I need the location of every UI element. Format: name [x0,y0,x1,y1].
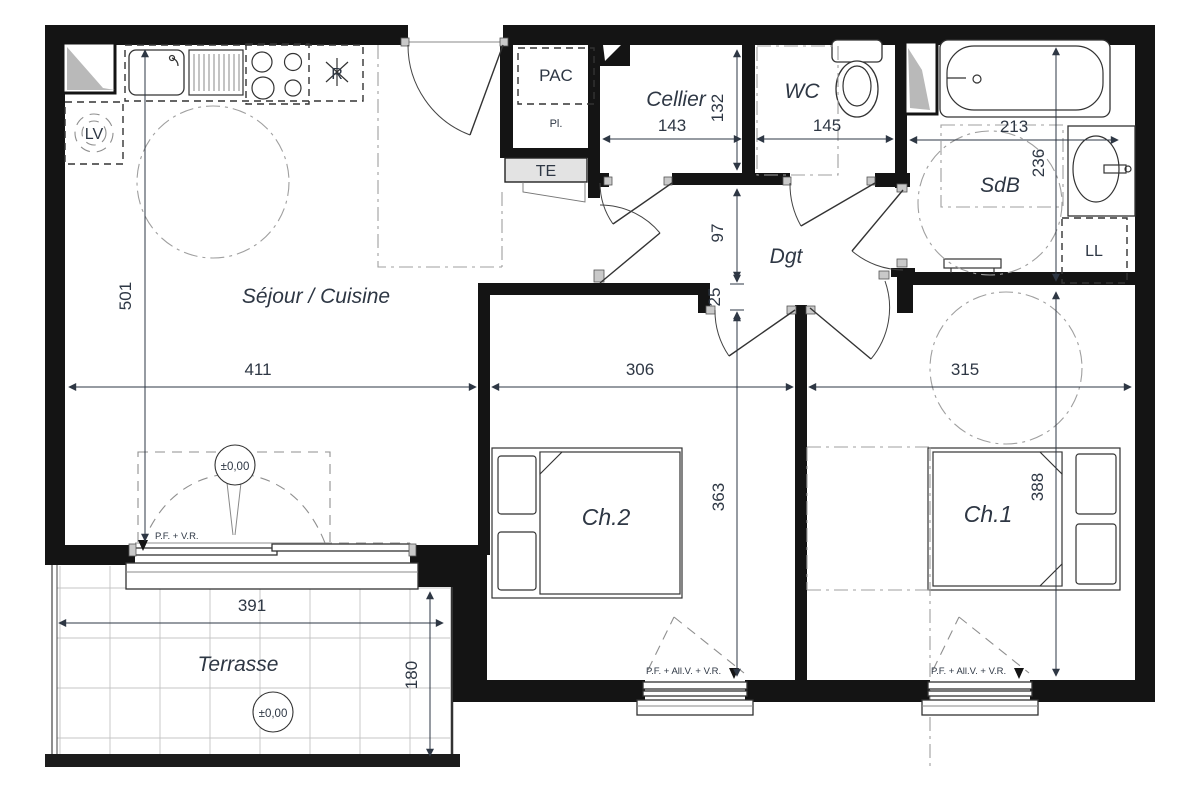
dim-180: 180 [402,661,421,689]
label-ch2: Ch.2 [582,504,631,530]
wc-door [783,177,875,226]
sejour-turning-circle [137,106,289,258]
kitchen-hob-outline [246,44,309,104]
ch1-window-swing [933,617,1029,673]
wc-fixtures [757,40,882,175]
wc-door-leaf [801,183,875,226]
floor-plan-drawing: R LV PAC Pl. TE LL [0,0,1200,800]
corridor-door [594,205,660,283]
wall-ch2-top [478,283,710,295]
label-terrasse: Terrasse [198,653,279,676]
dim-132: 132 [708,94,727,122]
label-sdb: SdB [980,174,1020,197]
toilet-bowl [836,61,878,117]
ch1-window-frame2 [928,691,1032,696]
dim-306: 306 [626,360,654,379]
sdb-door [852,184,907,270]
hob-burner-4 [285,80,301,96]
sdb-door-arc [852,251,903,270]
ch1-bed [928,448,1120,590]
terrasse-bottom-edge [45,754,460,767]
ch2-door-arc [715,310,729,356]
ch1-window-sill [922,700,1038,715]
hob-burner-2 [285,54,302,71]
bay-panel-left [135,548,277,555]
hob-burner-1 [252,52,272,72]
ch1-window-frame [928,682,1032,689]
washing-machine-label: LL [1085,243,1103,260]
ch1-bed-frame [928,448,1120,590]
sejour-level: ±0,00 [221,461,250,473]
bay-jamb-left [129,544,136,556]
entrance-jamb-right [500,38,508,46]
ch1-jamb-right [879,271,889,279]
bay-sill [126,563,418,589]
pac-label: PAC [539,66,573,85]
kitchen-drainer [189,50,243,95]
electrical-panel-flap [523,182,585,202]
ch2-window-swing [648,617,744,673]
dim-143: 143 [658,116,686,135]
wall-sejour-ch2 [478,283,490,555]
dishwasher-label: LV [85,126,104,143]
wall-left [45,25,65,565]
dim-391: 391 [238,596,266,615]
cellier-door [600,177,672,224]
guide-lines [137,45,1082,766]
entrance-door-leaf [470,45,503,135]
bay-window: P.F. + V.R. [126,452,418,589]
ch2-window-label: P.F. + All.V. + V.R. [646,666,721,677]
wc-clearance-zone [757,46,838,175]
dim-213: 213 [1000,117,1028,136]
fridge-symbol: R [326,58,348,86]
dim-25-group: 25 [705,266,744,328]
wall-pac-bottom [500,148,600,158]
ch1-jamb-left [806,306,815,314]
cellier-jamb-left [604,177,612,185]
ch1-window-arrow [1014,668,1024,679]
doors [401,38,907,359]
entry-zone [378,45,502,267]
ch2-sheet-fold [540,452,562,474]
label-wc: WC [785,80,821,103]
corridor-door-arc [600,205,660,233]
sdb-radiator [944,259,1001,273]
dim-25-ticks [730,284,744,310]
wall-sejour-bottom-left [45,545,135,565]
fridge-symbol-label: R [331,66,343,83]
floor-plan-page: R LV PAC Pl. TE LL [0,0,1200,800]
hob-burner-3 [252,77,274,99]
entrance-door-arc [408,45,470,135]
corridor-door-leaf [600,233,660,283]
dim-388: 388 [1028,473,1047,501]
wall-cellier-bottom [672,173,753,185]
terrasse-level: ±0,00 [259,708,288,720]
ch2-pillow-bottom [498,532,536,590]
dim-145: 145 [813,116,841,135]
label-dgt: Dgt [770,245,804,268]
ch1-door [806,271,890,359]
ch2-door-leaf [729,310,795,356]
wall-ch1-ch2 [795,305,807,682]
entrance-door [401,38,508,135]
ch2-pillow-top [498,456,536,514]
ch1-sheet-fold-top [1040,452,1062,474]
ch1-pillow-top [1076,454,1116,514]
placard-label: Pl. [550,118,563,130]
entrance-jamb-left [401,38,409,46]
radiator-body [944,259,1001,268]
ch2-window-frame2 [643,691,747,696]
dim-315: 315 [951,360,979,379]
ch2-door [706,306,796,356]
ch1-door-arc [871,281,890,359]
wc-door-arc [790,183,801,226]
dim-501: 501 [116,282,135,310]
bay-panel-right [272,544,410,551]
bay-window-label: P.F. + V.R. [155,531,199,542]
bay-jamb-right [409,544,416,556]
wall-cellier-wc [742,45,755,185]
ch2-window-sill [637,700,753,715]
dim-363: 363 [709,483,728,511]
kitchen-drainer-hatch [194,54,239,91]
label-cellier: Cellier [646,88,707,111]
ch1-window: P.F. + All.V. + V.R. [922,617,1038,715]
wall-bottom-middle [745,680,930,702]
label-sejour: Séjour / Cuisine [242,285,390,308]
ch2-window-frame [643,682,747,689]
wall-sejour-ch2-lower [453,550,487,682]
ch1-door-leaf [810,308,871,359]
dim-411: 411 [244,360,271,379]
kitchen-sink [129,50,184,95]
toilet-tank [832,40,882,62]
wall-pac-left [500,45,513,158]
ch1-pillow-bottom [1076,524,1116,584]
ch1-window-label: P.F. + All.V. + V.R. [931,666,1006,677]
wall-ch1-bottom [1030,680,1155,702]
dishwasher: LV [65,102,123,164]
sdb-jamb-bottom [897,259,907,267]
ch1-sheet-fold-bottom [1040,564,1062,586]
sdb-fixtures: LL [918,40,1135,283]
dim-25: 25 [705,288,724,307]
dim-97: 97 [708,224,727,243]
dim-236: 236 [1029,149,1048,177]
sdb-door-leaf [852,190,903,251]
wall-ch2-bottom [453,680,645,702]
ch2-window: P.F. + All.V. + V.R. [637,617,753,715]
electrical-panel-label: TE [536,163,556,180]
bay-swing-right [242,474,325,543]
wall-right [1135,25,1155,700]
ch1-clearance-zone [807,447,930,766]
pac-closet: PAC Pl. TE [505,48,594,202]
label-ch1: Ch.1 [964,501,1013,527]
cellier-door-arc [600,183,613,224]
